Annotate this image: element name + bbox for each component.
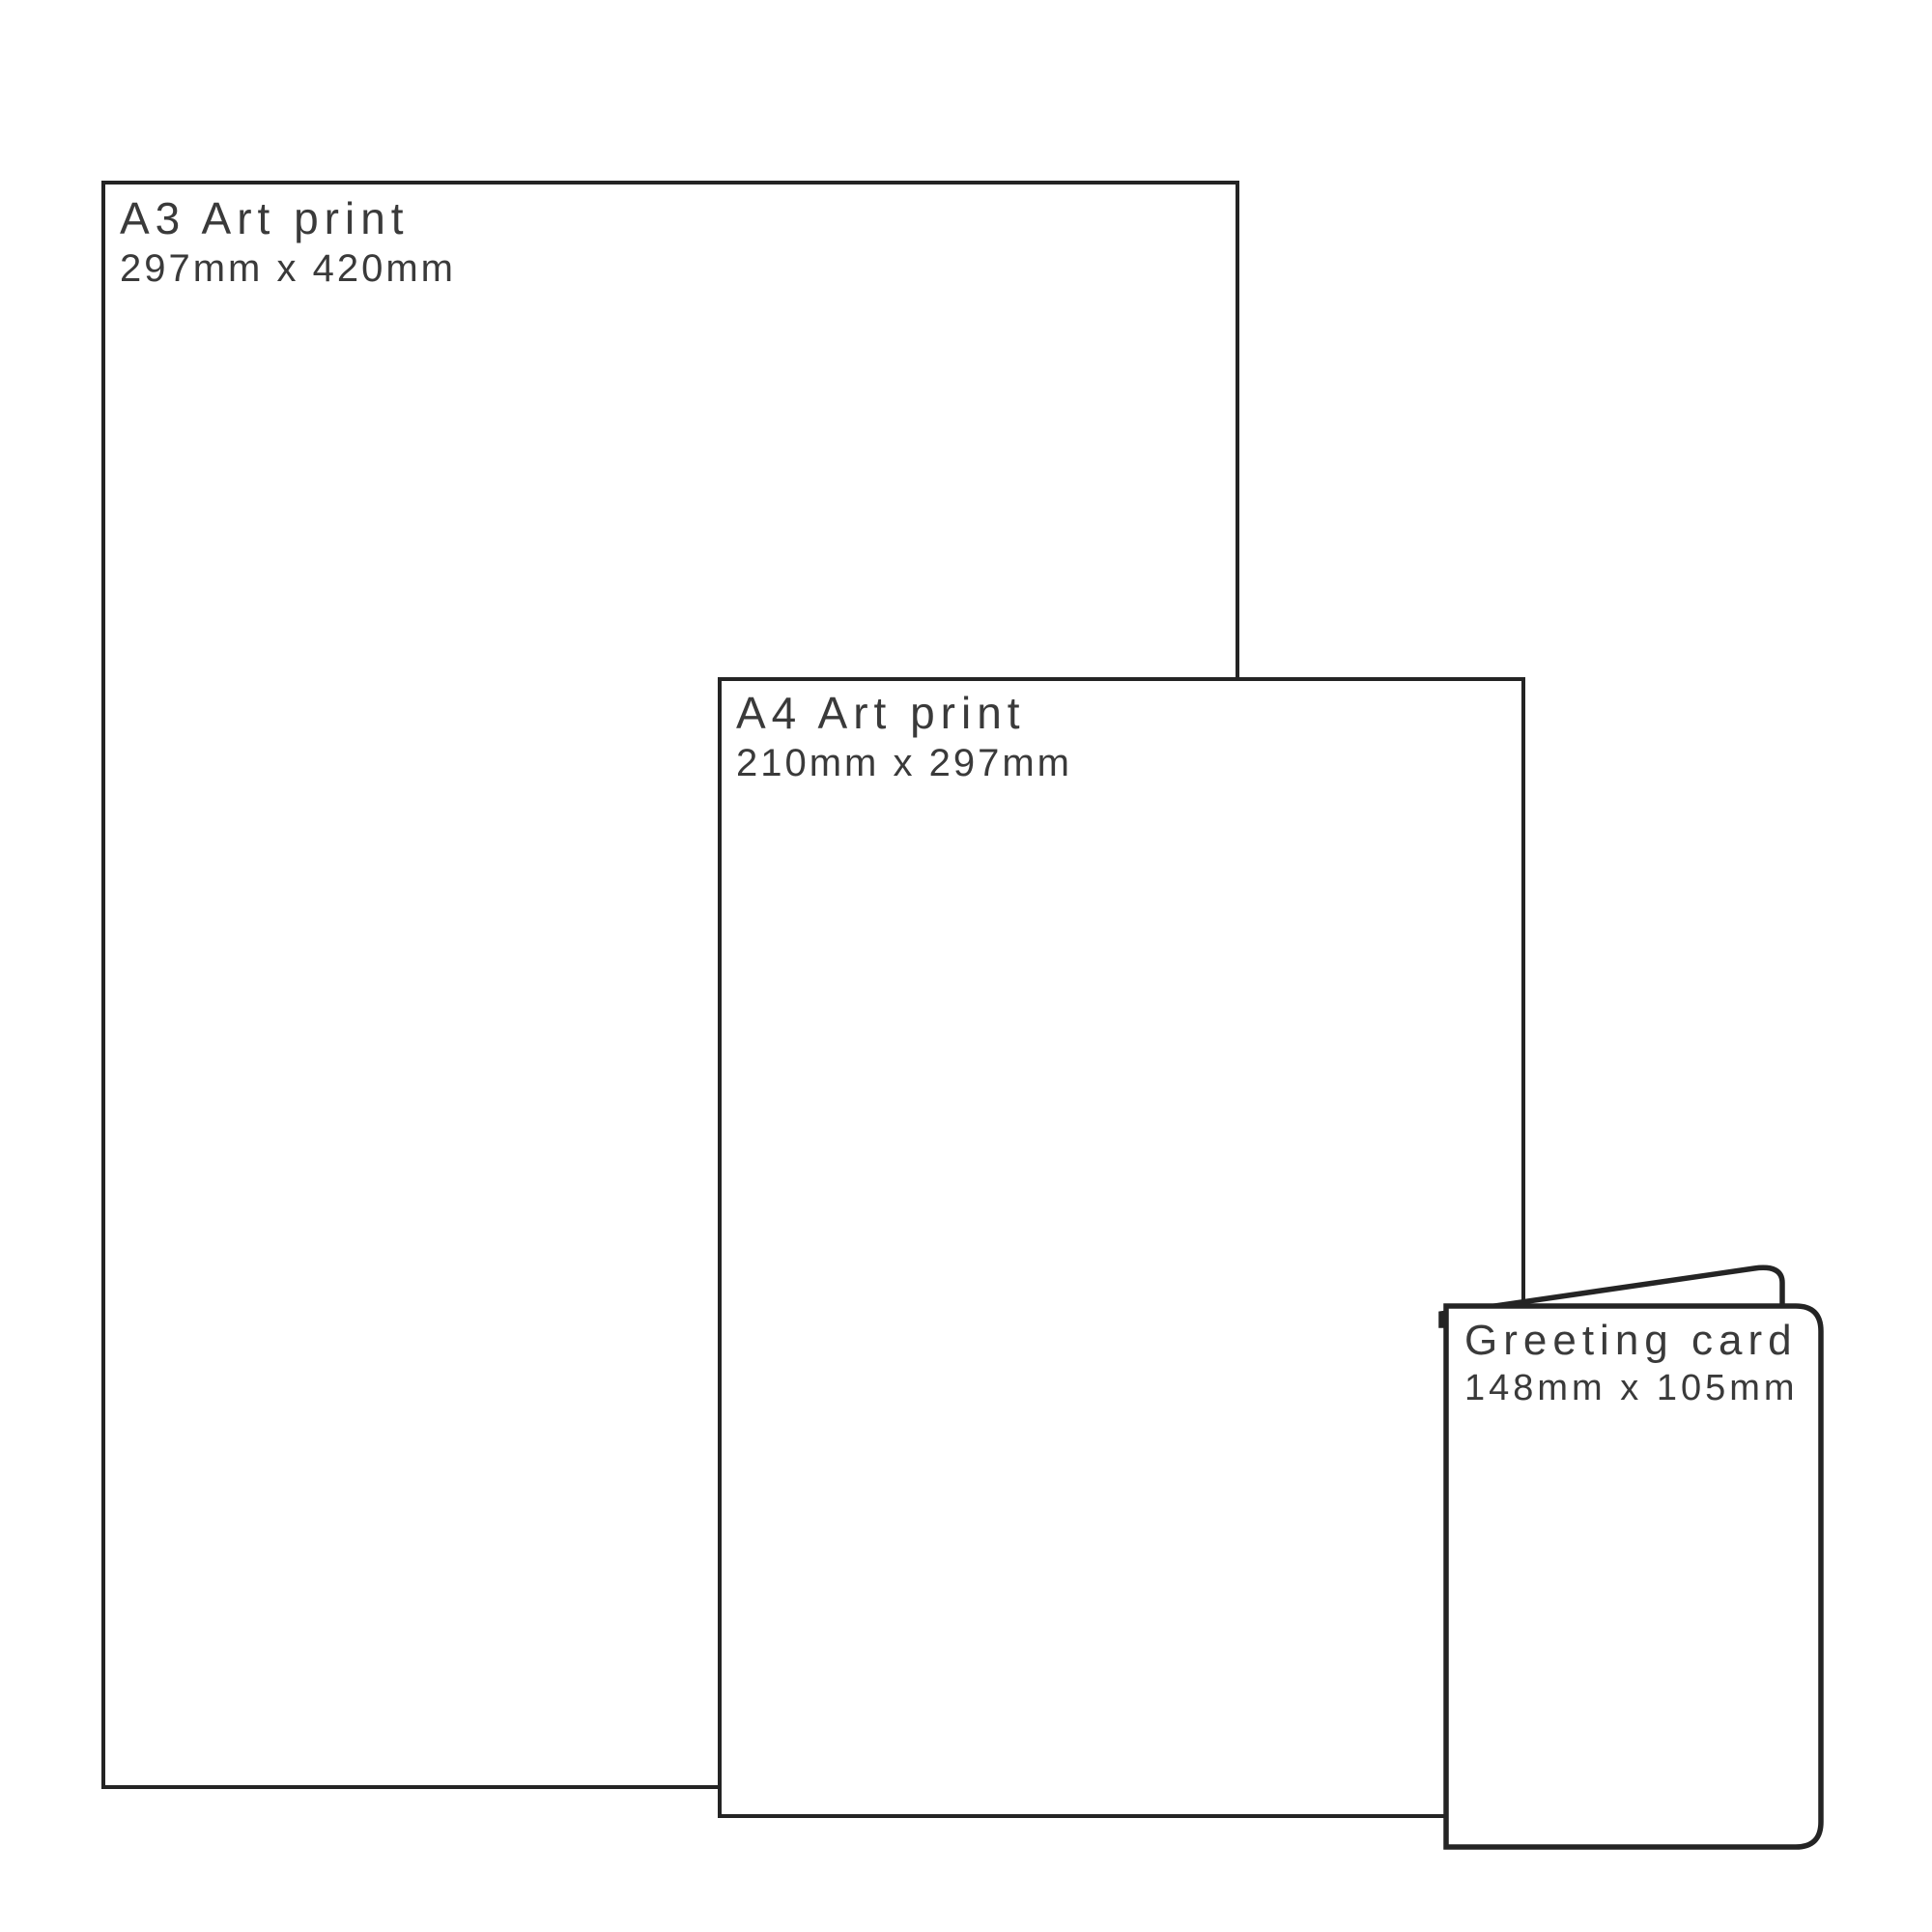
size-comparison-diagram: A3 Art print 297mm x 420mm A4 Art print … — [0, 0, 1932, 1932]
a4-print-outline — [720, 679, 1523, 1816]
greeting-card-title: Greeting card — [1464, 1316, 1799, 1365]
a4-print-dimensions: 210mm x 297mm — [736, 741, 1072, 786]
a3-print-title: A3 Art print — [120, 193, 456, 244]
a4-print-label: A4 Art print 210mm x 297mm — [736, 688, 1072, 787]
greeting-card-label: Greeting card 148mm x 105mm — [1464, 1316, 1799, 1410]
a3-print-dimensions: 297mm x 420mm — [120, 246, 456, 292]
a4-print-title: A4 Art print — [736, 688, 1072, 739]
a3-print-label: A3 Art print 297mm x 420mm — [120, 193, 456, 293]
greeting-card-dimensions: 148mm x 105mm — [1464, 1367, 1799, 1410]
